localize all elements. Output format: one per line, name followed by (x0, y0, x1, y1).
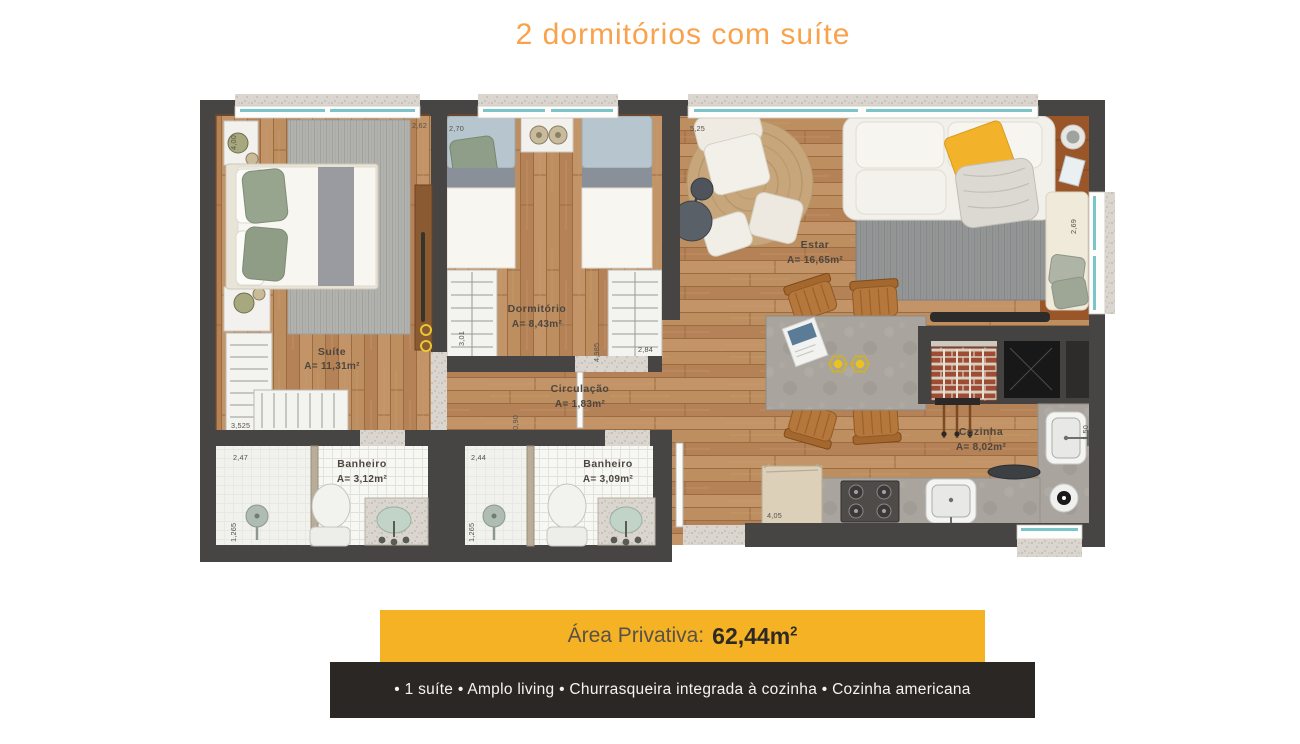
lamp-icon (253, 288, 265, 300)
tap-knob (623, 539, 630, 546)
shower-center (492, 514, 497, 519)
sink-drain (949, 498, 953, 502)
tap-knob (391, 539, 398, 546)
pillow-green (242, 226, 288, 281)
dim-kitchen-length: 4,05 (767, 511, 782, 520)
wall-right (1089, 100, 1105, 547)
toilet-tank (547, 527, 587, 546)
floor-lamp-shade (691, 178, 713, 200)
skewer-handle (941, 431, 946, 436)
dorm-area: A= 8,43m² (512, 319, 563, 330)
bath1-threshold (360, 430, 405, 446)
features-text: • 1 suíte • Amplo living • Churrasqueira… (394, 681, 970, 699)
features-banner: • 1 suíte • Amplo living • Churrasqueira… (330, 662, 1035, 718)
tap-knob (403, 537, 410, 544)
banheiro2-label: Banheiro (583, 458, 633, 470)
dim-suite-closet: 3,525 (231, 421, 250, 430)
dining-chair (850, 278, 900, 318)
wall-dorm-estar (662, 114, 680, 320)
dim-bath1-side: 1,265 (229, 523, 238, 542)
area-banner-label: Área Privativa: (568, 624, 705, 648)
dim-varanda: 2,69 (1069, 219, 1078, 234)
flower-icon (851, 356, 869, 372)
banheiro1-label: Banheiro (337, 458, 387, 470)
gas-stove (841, 481, 899, 522)
page: 2 dormitórios com suíte (0, 0, 1300, 744)
suite-door-threshold (431, 352, 447, 430)
bed-runner (318, 167, 354, 286)
wall-bath2-right (653, 430, 672, 562)
tap-knob (635, 537, 642, 544)
cozinha-area: A= 8,02m² (956, 442, 1007, 453)
lamp-icon (234, 293, 254, 313)
dorm-label: Dormitório (508, 303, 567, 315)
wall-dorm-bottom (447, 356, 575, 372)
wall-bath2-top (465, 430, 605, 446)
pillow (1051, 276, 1089, 309)
banheiro1-area: A= 3,12m² (337, 474, 388, 485)
dim-circ-length: 4,985 (592, 343, 601, 362)
plant-icon (1067, 131, 1080, 144)
page-title: 2 dormitórios com suíte (383, 18, 983, 52)
door-handle (421, 232, 425, 322)
estar-area: A= 16,65m² (787, 255, 843, 266)
circulacao-area: A= 1,83m² (555, 399, 606, 410)
shower-center (255, 514, 260, 519)
dim-estar-top: 5,25 (690, 124, 705, 133)
floor-plan: Suíte A= 11,31m² Dormitório A= 8,43m² Es… (195, 88, 1115, 568)
window-varanda (1089, 192, 1115, 314)
circulacao-label: Circulação (551, 383, 610, 395)
bath2-threshold (605, 430, 650, 446)
sink-drain (1064, 436, 1068, 440)
window-living (688, 94, 1038, 118)
sofa-seat (856, 170, 946, 214)
wall-bath1-top (214, 430, 360, 446)
dim-dorm-closet-right: 2,84 (638, 345, 653, 354)
estar-label: Estar (801, 239, 830, 251)
cozinha-label: Cozinha (959, 426, 1003, 438)
suite-label: Suíte (318, 346, 346, 358)
dorm-bed1 (447, 188, 515, 268)
dim-suite-width: 4,00 (229, 135, 238, 150)
toilet-icon (312, 484, 350, 528)
dorm-door-threshold (575, 356, 648, 372)
dorm-bed1-band (447, 168, 515, 188)
tap-knob (379, 537, 386, 544)
lamp-center (555, 132, 561, 138)
lamp-center (536, 132, 542, 138)
wall-suite-dorm (431, 114, 447, 352)
lamp-icon (246, 153, 258, 165)
dorm-bed2-pillow (582, 116, 652, 168)
toilet-tank (310, 527, 350, 546)
dim-circ-width: 0,90 (511, 415, 520, 430)
area-banner-value: 62,44m2 (712, 623, 797, 650)
window-dorm (478, 94, 618, 118)
toilet-icon (548, 484, 586, 528)
dim-suite-top: 2,62 (412, 121, 427, 130)
dim-dorm-top: 2,70 (449, 124, 464, 133)
wall-left (200, 100, 216, 562)
window-kitchen (1017, 525, 1082, 557)
window-suite (235, 94, 420, 118)
dorm-bed2 (582, 188, 652, 268)
grill-base (935, 398, 980, 405)
suite-area: A= 11,31m² (304, 361, 360, 372)
entry-door-leaf (676, 443, 683, 527)
glass-bowl (988, 465, 1040, 479)
wall-dorm-bottom2 (648, 356, 662, 372)
counter-panel (1066, 341, 1091, 398)
throw-blanket (954, 157, 1040, 229)
range-hood (930, 312, 1050, 322)
flower-icon (829, 356, 847, 372)
dim-bath1-top: 2,47 (233, 453, 248, 462)
wall-between-baths (428, 430, 465, 562)
entry-threshold (683, 525, 745, 545)
tap-knob (611, 537, 618, 544)
dim-bath2-top: 2,44 (471, 453, 486, 462)
sofa-cushion (856, 122, 944, 168)
dim-kitchen-side: 1,50 (1081, 425, 1090, 440)
banheiro2-area: A= 3,09m² (583, 474, 634, 485)
dim-bath2-side: 1,265 (467, 523, 476, 542)
churrasqueira-grill (931, 347, 997, 401)
dim-dorm-closet: 3,01 (457, 331, 466, 346)
pillow-green (241, 168, 288, 224)
area-banner: Área Privativa: 62,44m2 (380, 610, 985, 662)
shower2-glass (527, 446, 534, 546)
dorm-bed2-band (582, 168, 652, 188)
burner-dot (1062, 496, 1066, 500)
